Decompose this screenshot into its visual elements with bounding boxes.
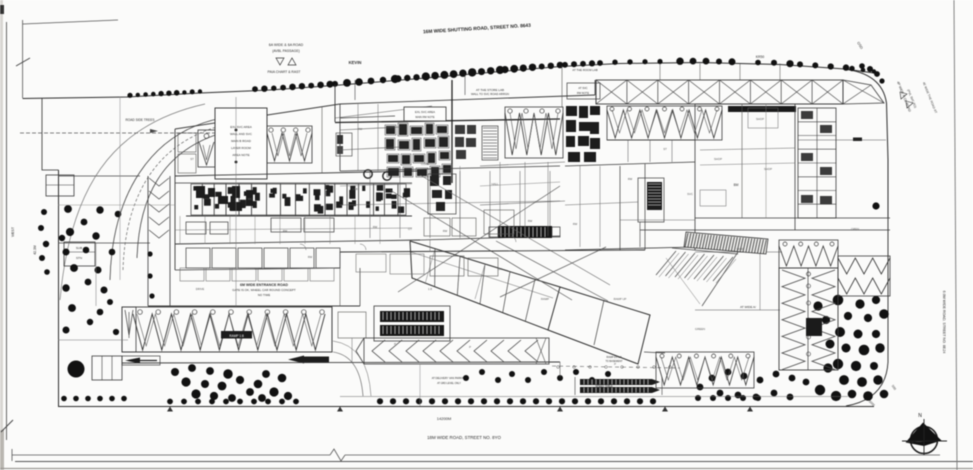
svg-text:P: P	[394, 342, 396, 346]
svg-text:6M WIDE ENTRANCE ROAD: 6M WIDE ENTRANCE ROAD	[240, 283, 288, 287]
svg-text:RM: RM	[443, 229, 448, 233]
svg-text:ROAD SIDE TREES: ROAD SIDE TREES	[126, 118, 155, 122]
svg-text:GREEN: GREEN	[695, 327, 705, 331]
svg-text:KEVIN: KEVIN	[349, 60, 362, 65]
svg-text:6A WIDE & 6A ROAD: 6A WIDE & 6A ROAD	[269, 43, 304, 47]
svg-text:PAIA CHART & RAST: PAIA CHART & RAST	[268, 70, 301, 74]
svg-text:AREA NOTE: AREA NOTE	[232, 153, 249, 157]
svg-text:ST: ST	[190, 157, 194, 161]
svg-text:HALL: HALL	[492, 182, 499, 186]
svg-text:SHOP: SHOP	[764, 167, 772, 171]
svg-text:SUB: SUB	[76, 246, 82, 250]
svg-text:(AVBL PASSAGE): (AVBL PASSAGE)	[272, 49, 299, 53]
svg-text:SHOP: SHOP	[756, 117, 764, 121]
svg-text:WALL AND SVC: WALL AND SVC	[230, 132, 253, 136]
svg-text:AT DELIVERY VAN PARKING: AT DELIVERY VAN PARKING	[432, 376, 467, 380]
svg-text:WC: WC	[248, 197, 253, 201]
svg-text:STN: STN	[76, 256, 82, 260]
svg-text:P: P	[614, 362, 616, 366]
svg-text:6.0M WIDE ROAD, STREET NO. 8E2: 6.0M WIDE ROAD, STREET NO. 8E24	[942, 291, 946, 354]
svg-text:WALL TO SVC ROAD ARRGN: WALL TO SVC ROAD ARRGN	[471, 92, 509, 96]
svg-text:YARD: YARD	[736, 247, 744, 251]
svg-text:18M WIDE ROAD, STREET NO. 8YO: 18M WIDE ROAD, STREET NO. 8YO	[427, 435, 501, 440]
svg-text:EXL SVC AREA: EXL SVC AREA	[230, 125, 251, 129]
svg-text:NO TIME: NO TIME	[258, 293, 270, 297]
svg-text:RM: RM	[358, 127, 363, 131]
svg-text:WEST: WEST	[11, 227, 15, 237]
svg-text:CORE: CORE	[421, 162, 429, 166]
svg-text:MAIN RM NOTE: MAIN RM NOTE	[415, 115, 434, 119]
svg-text:1:8: 1:8	[428, 287, 432, 291]
svg-text:SHOP: SHOP	[714, 157, 722, 161]
svg-text:BM: BM	[734, 183, 739, 187]
svg-text:OT: OT	[408, 227, 412, 231]
svg-text:LAYER ROOM: LAYER ROOM	[231, 146, 251, 150]
svg-text:N: N	[918, 413, 922, 419]
svg-text:GATE IS OK, WHEEL CAR ROUND CO: GATE IS OK, WHEEL CAR ROUND CONCEPT	[232, 288, 296, 292]
svg-text:RM: RM	[308, 255, 313, 259]
svg-text:RAMP: RAMP	[541, 297, 549, 301]
svg-text:RM: RM	[373, 225, 378, 229]
svg-text:AT GRD LEVEL ONLY: AT GRD LEVEL ONLY	[437, 382, 461, 385]
svg-text:P: P	[469, 345, 471, 349]
svg-text:RAMP UP: RAMP UP	[614, 297, 627, 301]
svg-text:DRIVE: DRIVE	[196, 287, 205, 291]
svg-text:AT WIDE A/: AT WIDE A/	[740, 305, 756, 309]
svg-text:AT THE ROOM LAB: AT THE ROOM LAB	[572, 68, 597, 72]
svg-text:RM: RM	[528, 219, 533, 223]
svg-text:RM: RM	[573, 222, 578, 226]
svg-text:AT SVC: AT SVC	[578, 86, 587, 90]
svg-text:DN: DN	[498, 267, 502, 271]
svg-text:MAIN B ROAD: MAIN B ROAD	[231, 139, 252, 143]
svg-text:LAB: LAB	[352, 187, 357, 191]
svg-text:RM: RM	[283, 229, 288, 233]
svg-text:RM NOTE: RM NOTE	[577, 91, 589, 95]
svg-text:ST: ST	[663, 147, 667, 151]
svg-text:OPEN: OPEN	[851, 227, 859, 231]
svg-text:42.3M: 42.3M	[33, 245, 37, 255]
svg-text:EXL SVC AREA: EXL SVC AREA	[415, 110, 435, 114]
svg-text:SVC: SVC	[687, 192, 693, 196]
svg-text:KR50: KR50	[756, 55, 765, 59]
svg-text:RAMP 1:8: RAMP 1:8	[229, 334, 244, 338]
svg-text:RM: RM	[628, 177, 633, 181]
svg-text:14200M: 14200M	[437, 416, 451, 421]
